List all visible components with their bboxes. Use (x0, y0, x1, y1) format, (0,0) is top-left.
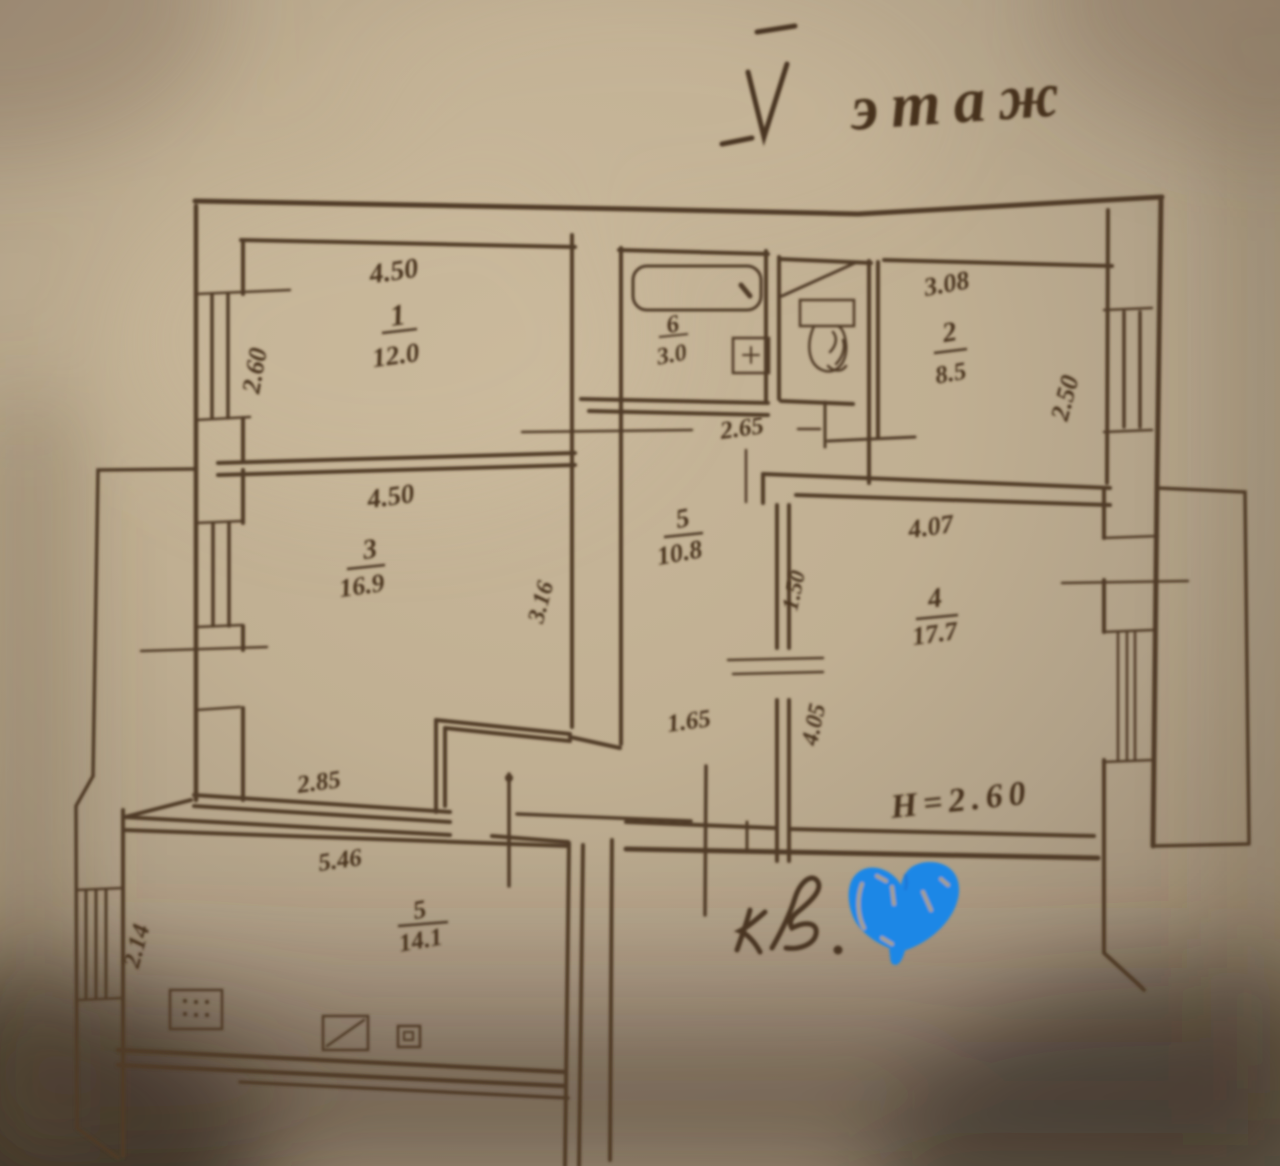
svg-text:8.5: 8.5 (933, 358, 968, 390)
svg-text:3.0: 3.0 (654, 340, 689, 371)
